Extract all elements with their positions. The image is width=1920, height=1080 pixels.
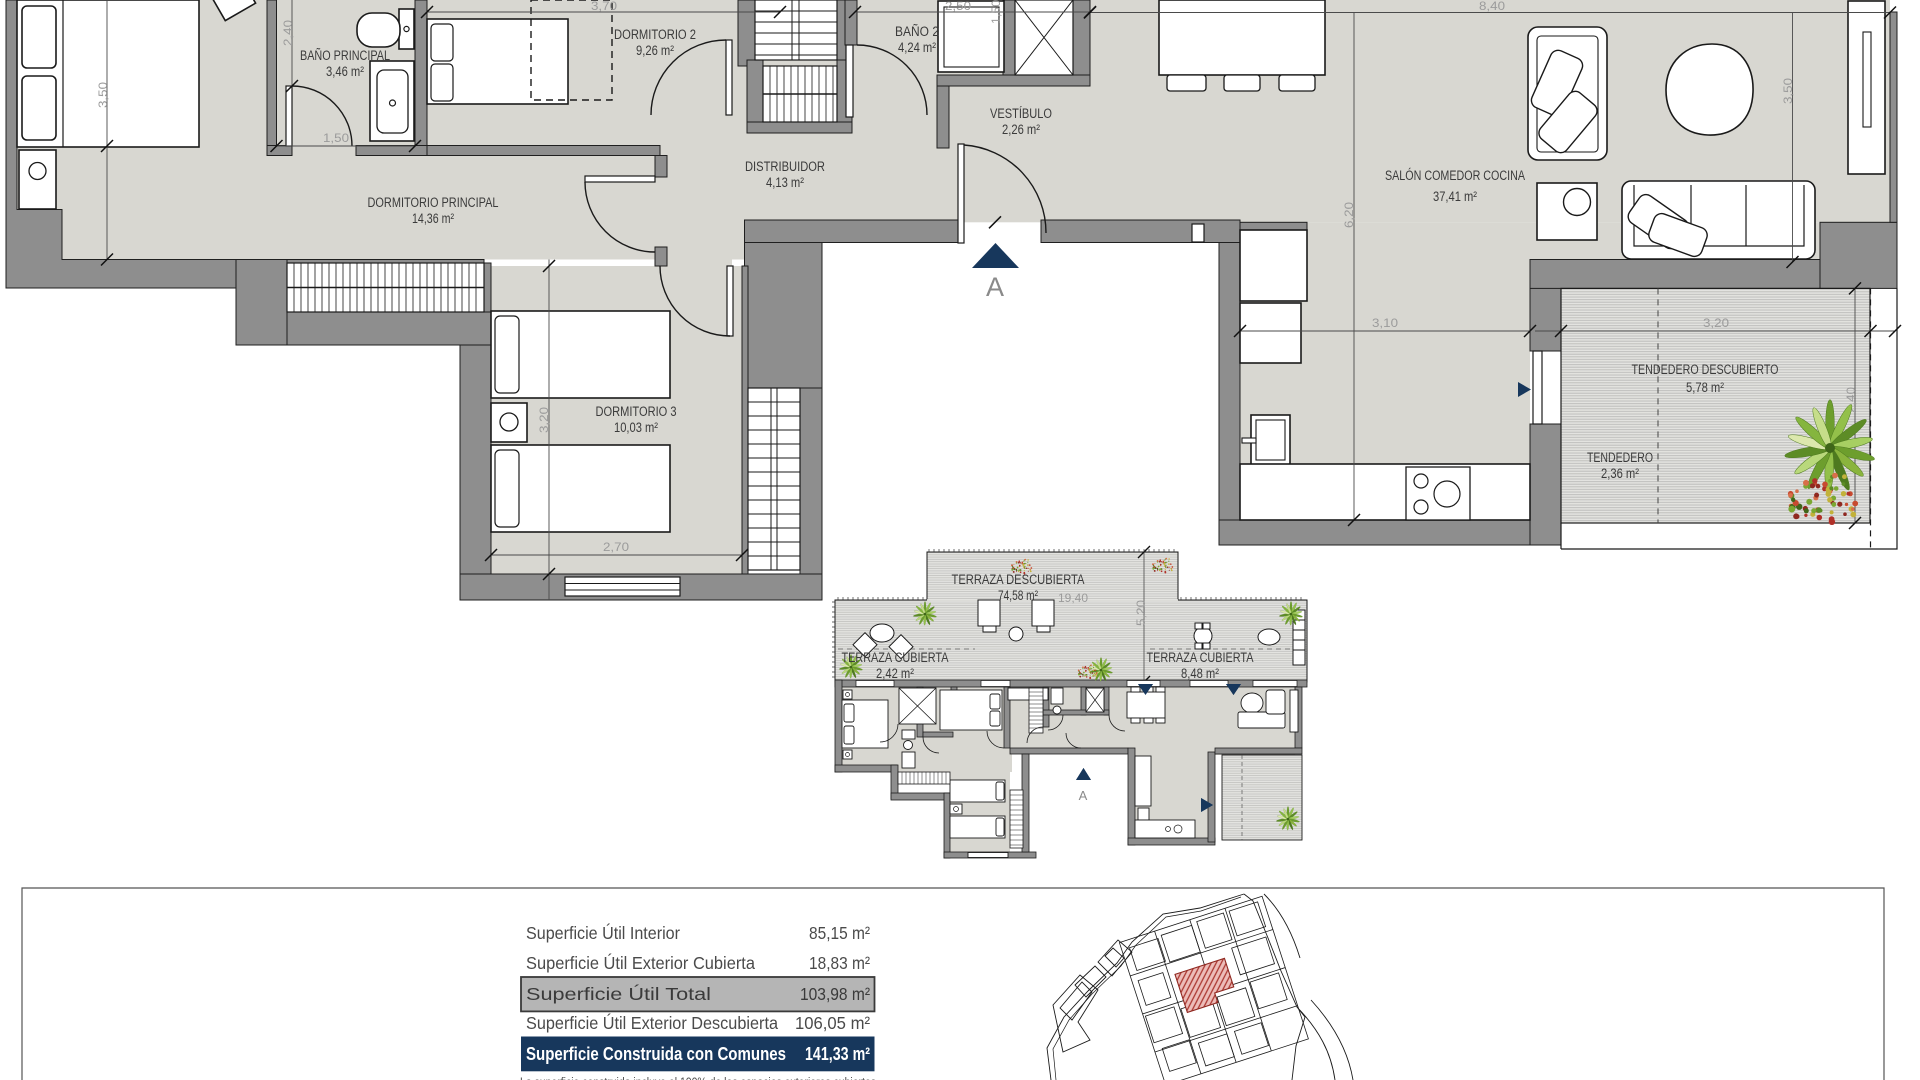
svg-text:DORMITORIO 3: DORMITORIO 3 [596, 404, 677, 419]
svg-text:85,15 m²: 85,15 m² [809, 923, 870, 943]
svg-text:Superficie Útil Interior: Superficie Útil Interior [526, 922, 680, 943]
svg-text:6,20: 6,20 [1344, 202, 1356, 228]
svg-text:106,05 m²: 106,05 m² [795, 1013, 870, 1033]
svg-text:2,26 m²: 2,26 m² [1002, 122, 1040, 137]
svg-text:A: A [986, 272, 1004, 302]
svg-text:1,50: 1,50 [323, 133, 349, 145]
svg-text:4,13 m²: 4,13 m² [766, 175, 804, 190]
svg-text:3,20: 3,20 [1703, 318, 1729, 330]
svg-text:3,10: 3,10 [1372, 318, 1398, 330]
svg-text:DORMITORIO PRINCIPAL: DORMITORIO PRINCIPAL [368, 195, 499, 210]
svg-text:3,50: 3,50 [98, 82, 110, 108]
svg-text:SALÓN COMEDOR COCINA: SALÓN COMEDOR COCINA [1385, 168, 1525, 183]
svg-text:Superficie Construida con Comu: Superficie Construida con Comunes [526, 1044, 786, 1064]
svg-text:37,41 m²: 37,41 m² [1433, 189, 1477, 204]
svg-text:BAÑO 2: BAÑO 2 [895, 24, 939, 39]
svg-text:2,40: 2,40 [283, 20, 295, 46]
svg-text:3,70: 3,70 [591, 1, 617, 13]
svg-text:10,03 m²: 10,03 m² [614, 420, 658, 435]
svg-text:DORMITORIO 2: DORMITORIO 2 [614, 27, 696, 42]
svg-text:5,20: 5,20 [1136, 600, 1148, 626]
svg-text:2,36 m²: 2,36 m² [1601, 466, 1639, 481]
svg-text:4,24 m²: 4,24 m² [898, 40, 936, 55]
svg-text:141,33 m²: 141,33 m² [805, 1044, 870, 1064]
svg-text:8,48 m²: 8,48 m² [1181, 666, 1219, 681]
svg-text:Superficie Útil Exterior Cubie: Superficie Útil Exterior Cubierta [526, 952, 755, 973]
svg-text:DISTRIBUIDOR: DISTRIBUIDOR [745, 159, 825, 174]
svg-text:TERRAZA CUBIERTA: TERRAZA CUBIERTA [842, 650, 949, 665]
svg-text:Superficie Útil Exterior Descu: Superficie Útil Exterior Descubierta [526, 1012, 778, 1033]
svg-text:BAÑO PRINCIPAL: BAÑO PRINCIPAL [300, 48, 390, 63]
svg-text:TERRAZA DESCUBIERTA: TERRAZA DESCUBIERTA [952, 572, 1085, 587]
svg-text:2,70: 2,70 [603, 542, 629, 554]
svg-text:3,46 m²: 3,46 m² [326, 64, 364, 79]
svg-text:103,98 m²: 103,98 m² [800, 984, 870, 1004]
svg-text:1,50: 1,50 [991, 0, 1003, 24]
svg-text:18,83 m²: 18,83 m² [809, 953, 870, 973]
svg-text:A: A [1079, 788, 1088, 803]
svg-text:2,42 m²: 2,42 m² [876, 666, 914, 681]
svg-text:TERRAZA CUBIERTA: TERRAZA CUBIERTA [1147, 650, 1254, 665]
svg-text:VESTÍBULO: VESTÍBULO [990, 106, 1052, 121]
svg-text:14,36 m²: 14,36 m² [412, 211, 454, 226]
svg-text:TENDEDERO DESCUBIERTO: TENDEDERO DESCUBIERTO [1632, 362, 1779, 377]
svg-text:74,58 m²: 74,58 m² [998, 588, 1038, 603]
svg-text:5,78 m²: 5,78 m² [1686, 380, 1724, 395]
svg-text:TENDEDERO: TENDEDERO [1587, 450, 1653, 465]
svg-text:3,20: 3,20 [539, 407, 551, 433]
svg-text:2,50: 2,50 [945, 1, 971, 13]
svg-text:19,40: 19,40 [1058, 593, 1088, 605]
svg-text:8,40: 8,40 [1479, 1, 1505, 13]
svg-text:3,50: 3,50 [1783, 78, 1795, 104]
svg-text:Superficie Útil Total: Superficie Útil Total [526, 983, 711, 1004]
svg-text:9,26 m²: 9,26 m² [636, 43, 674, 58]
